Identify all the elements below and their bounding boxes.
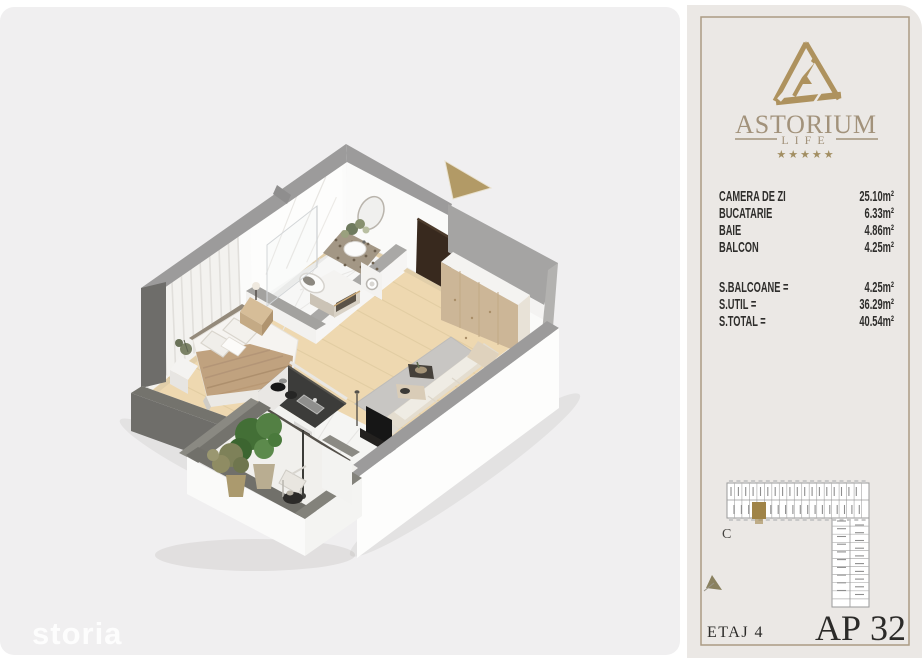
svg-text:AP 32: AP 32 <box>815 608 906 648</box>
svg-text:6.33m²: 6.33m² <box>865 205 894 222</box>
svg-text:storia: storia <box>32 616 122 651</box>
svg-text:C: C <box>722 527 731 542</box>
svg-text:40.54m²: 40.54m² <box>859 313 894 330</box>
svg-text:LIFE: LIFE <box>781 133 830 147</box>
svg-text:25.10m²: 25.10m² <box>859 188 894 205</box>
svg-text:4.86m²: 4.86m² <box>865 222 894 239</box>
svg-text:CAMERA DE ZI: CAMERA DE ZI <box>719 188 786 205</box>
svg-text:BAIE: BAIE <box>719 222 741 239</box>
svg-text:4.25m²: 4.25m² <box>865 279 894 296</box>
svg-text:★★★★★: ★★★★★ <box>776 149 835 161</box>
svg-text:S.UTIL =: S.UTIL = <box>719 296 756 313</box>
svg-text:S.BALCOANE =: S.BALCOANE = <box>719 279 788 296</box>
svg-text:ETAJ 4: ETAJ 4 <box>707 624 764 641</box>
svg-text:4.25m²: 4.25m² <box>865 239 894 256</box>
svg-text:BALCON: BALCON <box>719 239 759 256</box>
svg-text:BUCATARIE: BUCATARIE <box>719 205 772 222</box>
svg-text:36.29m²: 36.29m² <box>859 296 894 313</box>
svg-text:S.TOTAL =: S.TOTAL = <box>719 313 766 330</box>
